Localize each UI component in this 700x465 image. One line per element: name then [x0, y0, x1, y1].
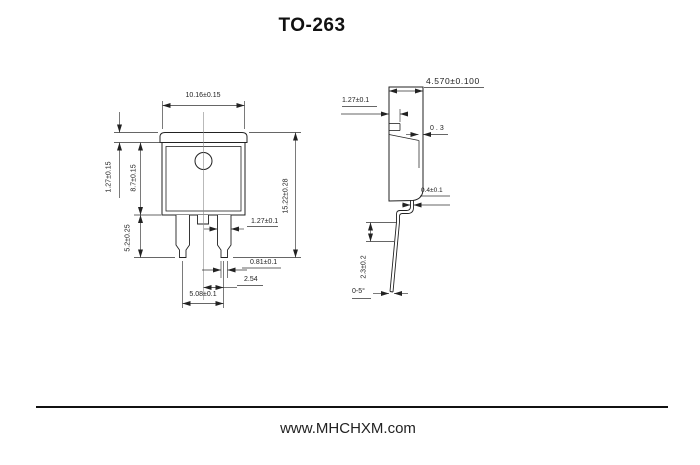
dim-lead-width-label: 1.27±0.1 — [251, 218, 278, 225]
package-outline-drawing — [0, 0, 700, 465]
center-lead-stub — [198, 215, 209, 224]
dim-tab-height — [114, 112, 161, 198]
dim-body-height — [134, 143, 161, 216]
footer-url: www.MHCHXM.com — [280, 420, 416, 437]
dim-overall-thickness-label: 4.570±0.100 — [426, 77, 480, 86]
dim-lead-span-label: 5.08±0.1 — [189, 291, 216, 298]
dim-lead-length — [134, 215, 175, 258]
side-lead — [390, 200, 414, 292]
footer-divider — [36, 406, 668, 408]
front-view — [160, 112, 247, 300]
dim-foot-height-label: 2.3±0.2 — [361, 255, 368, 278]
left-lead — [176, 215, 190, 258]
dim-lead-width — [204, 227, 278, 230]
dim-body-width-label: 10.16±0.15 — [186, 92, 221, 99]
side-view — [389, 87, 423, 292]
dim-tab-height-label: 1.27±0.15 — [106, 161, 113, 192]
dim-lead-span — [183, 261, 224, 308]
side-outline — [389, 87, 423, 201]
dim-tab-thickness-label: 1.27±0.1 — [342, 97, 369, 104]
dim-edge-step-label: 0.3 — [430, 125, 446, 132]
datasheet-page: TO-263 — [0, 0, 700, 465]
dim-lead-pitch — [204, 286, 264, 288]
dim-lead-thickness-label: 0.4±0.1 — [421, 188, 443, 195]
dim-lead-pitch-label: 2.54 — [244, 276, 258, 283]
dim-foot-height — [366, 223, 397, 242]
dim-lead-tip-width-label: 0.81±0.1 — [250, 259, 277, 266]
dim-overall-height-label: 15.22±0.28 — [283, 179, 290, 214]
dim-lead-length-label: 5.2±0.25 — [125, 224, 132, 251]
dim-lead-angle-label: 0-5° — [352, 288, 365, 295]
right-lead — [218, 215, 232, 258]
dim-body-height-label: 8.7±0.15 — [131, 164, 138, 191]
